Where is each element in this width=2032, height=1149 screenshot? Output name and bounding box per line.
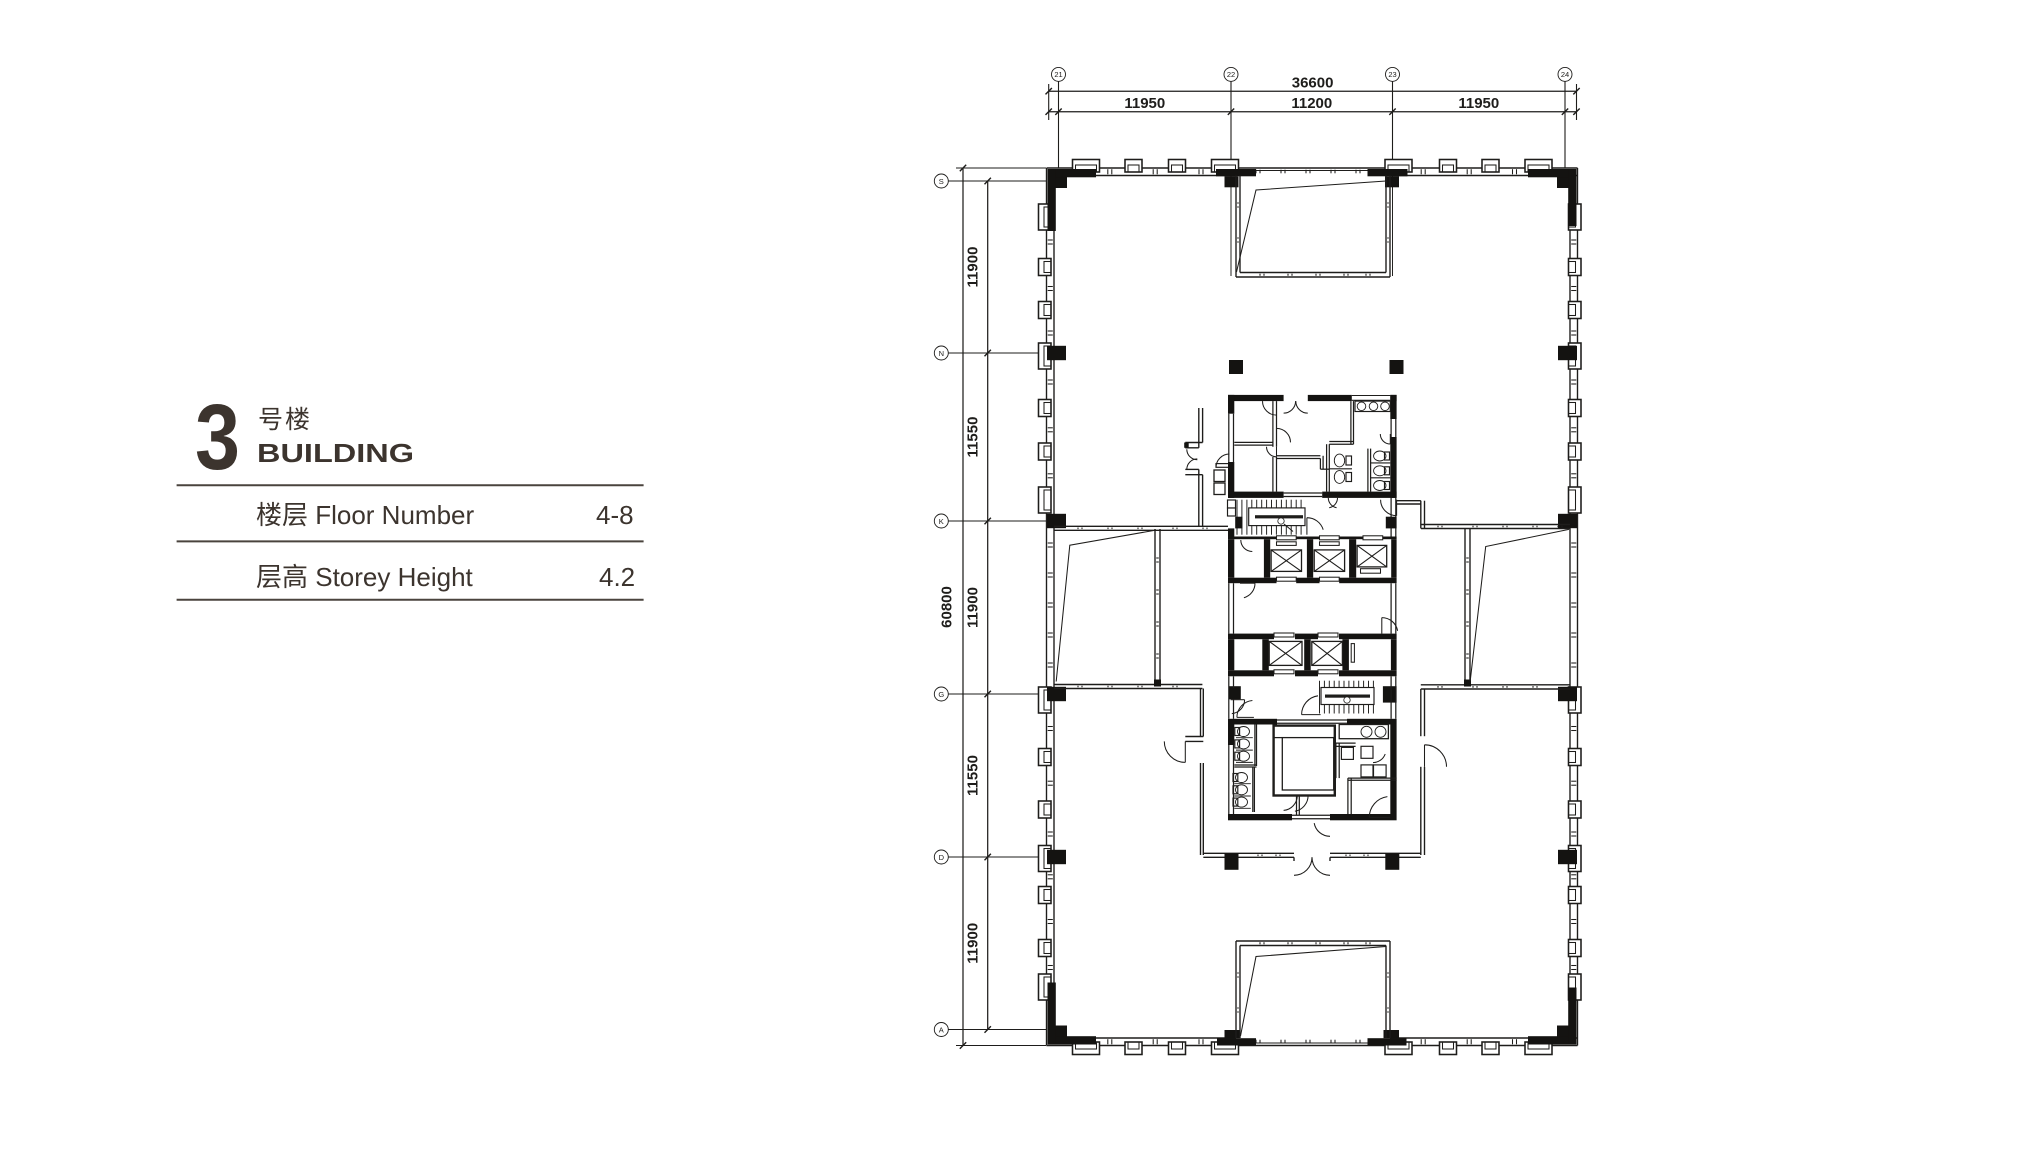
svg-text:36600: 36600 xyxy=(1292,75,1334,92)
svg-text:11950: 11950 xyxy=(1458,95,1499,112)
svg-text:3: 3 xyxy=(195,385,240,489)
svg-text:24: 24 xyxy=(1561,70,1569,79)
svg-text:D: D xyxy=(939,853,945,862)
svg-text:K: K xyxy=(939,517,944,526)
svg-text:21: 21 xyxy=(1054,70,1062,79)
svg-text:11550: 11550 xyxy=(965,417,982,458)
svg-text:22: 22 xyxy=(1227,70,1235,79)
svg-text:S: S xyxy=(939,177,944,186)
svg-text:23: 23 xyxy=(1388,70,1396,79)
svg-text:N: N xyxy=(939,349,944,358)
svg-text:号楼: 号楼 xyxy=(258,406,312,434)
svg-text:楼层 Floor Number: 楼层 Floor Number xyxy=(256,500,474,530)
svg-text:11900: 11900 xyxy=(964,923,981,964)
svg-text:A: A xyxy=(939,1025,944,1034)
svg-text:4-8: 4-8 xyxy=(596,500,634,530)
svg-text:60800: 60800 xyxy=(939,586,956,628)
svg-text:BUILDING: BUILDING xyxy=(257,438,414,468)
svg-text:4.2: 4.2 xyxy=(599,562,635,592)
svg-text:11900: 11900 xyxy=(965,247,982,288)
svg-text:11900: 11900 xyxy=(965,587,982,628)
svg-text:11950: 11950 xyxy=(1124,95,1165,112)
svg-text:层高 Storey Height: 层高 Storey Height xyxy=(256,562,474,592)
svg-text:11200: 11200 xyxy=(1291,95,1332,112)
svg-text:G: G xyxy=(938,690,944,699)
svg-text:11550: 11550 xyxy=(965,755,982,796)
